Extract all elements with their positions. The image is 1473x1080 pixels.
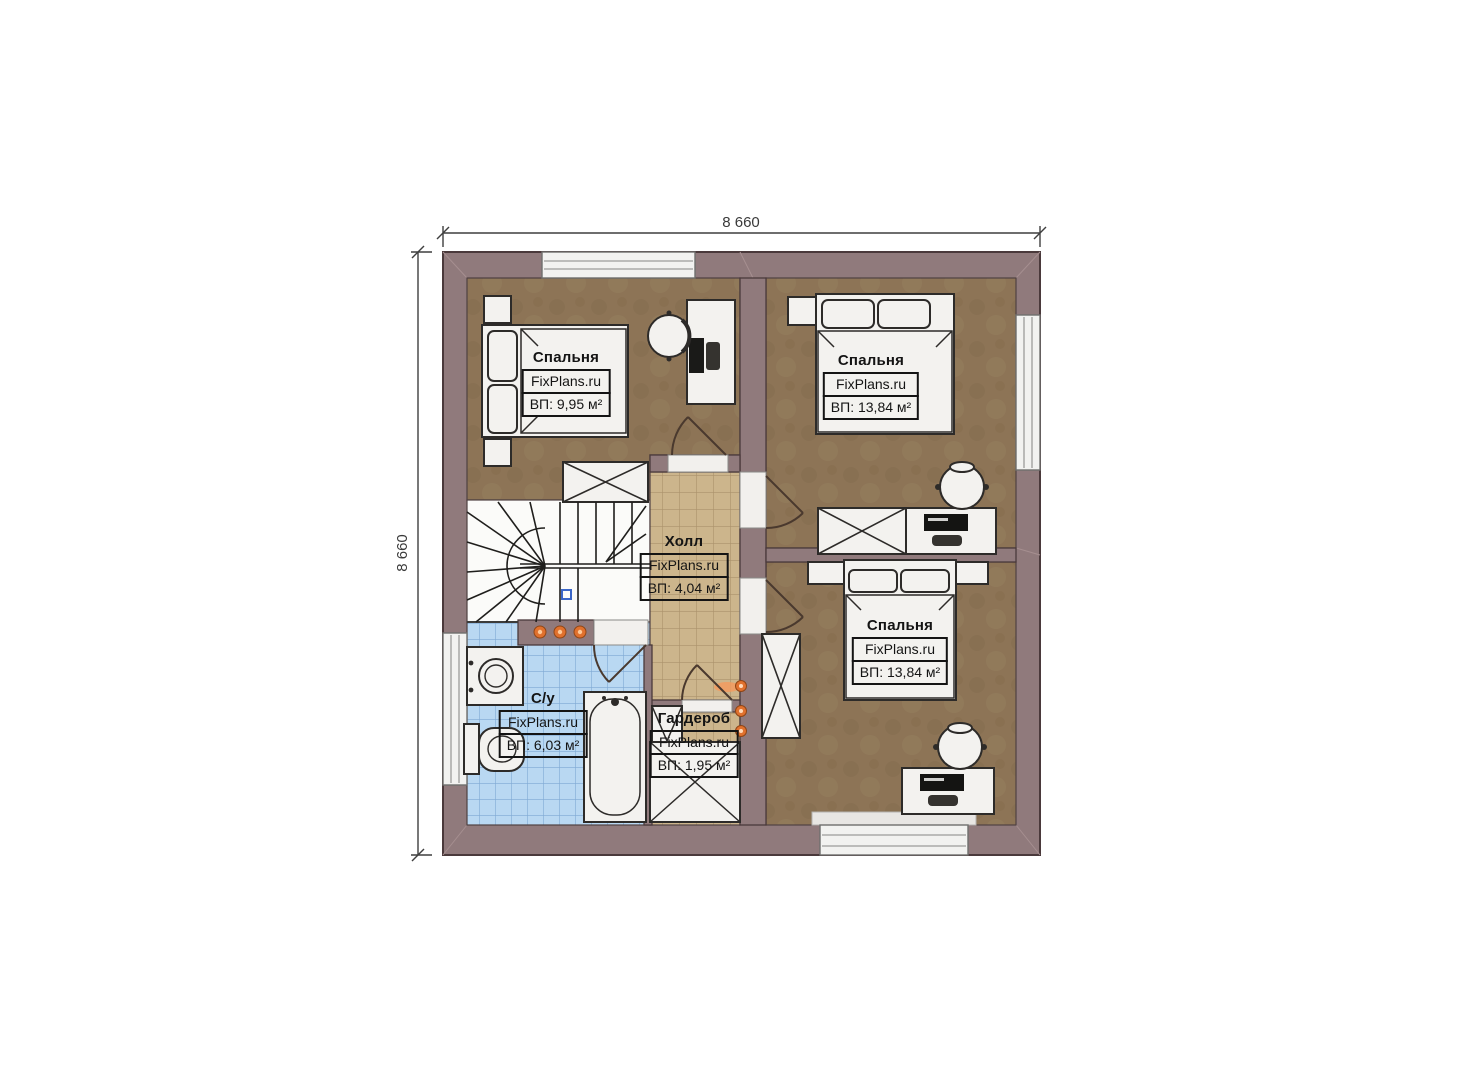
chair-armrest	[667, 357, 672, 362]
window-top	[542, 252, 695, 278]
room-label-boxes: FixPlans.ru ВП: 9,95 м²	[522, 369, 611, 417]
ceiling-lights	[534, 626, 586, 638]
chair-armrest	[983, 484, 989, 490]
room-label-bedroom-bottom-right: Спальня FixPlans.ru ВП: 13,84 м²	[852, 617, 948, 685]
monitor-icon	[920, 774, 964, 791]
room-label-bedroom-top-right: Спальня FixPlans.ru ВП: 13,84 м²	[823, 352, 919, 420]
room-name: Гардероб	[658, 710, 731, 727]
room-brand: FixPlans.ru	[852, 637, 948, 662]
room-area: ВП: 13,84 м²	[823, 395, 919, 420]
dimension-top-value: 8 660	[722, 214, 760, 231]
pillow	[488, 331, 517, 381]
pillow	[822, 300, 874, 328]
room-brand: FixPlans.ru	[522, 369, 611, 394]
keyboard-icon	[932, 535, 962, 546]
wall-center-vertical	[740, 278, 766, 825]
light-glow	[558, 630, 562, 634]
floor-plan-page: 8 660 8 660	[0, 0, 1473, 1080]
room-area: ВП: 4,04 м²	[640, 576, 729, 601]
room-brand: FixPlans.ru	[640, 553, 729, 578]
room-name: Спальня	[533, 349, 599, 366]
washer-knob	[469, 688, 474, 693]
room-label-bedroom-top-left: Спальня FixPlans.ru ВП: 9,95 м²	[522, 349, 611, 417]
nightstand	[788, 297, 816, 325]
window-right-bedroom	[1016, 315, 1040, 470]
room-name: С/у	[531, 690, 555, 707]
light-glow	[739, 709, 743, 713]
room-name: Спальня	[867, 617, 933, 634]
chair-headrest	[948, 723, 972, 733]
room-brand: FixPlans.ru	[823, 372, 919, 397]
monitor-highlight	[924, 778, 944, 781]
floor-plan-drawing: 8 660 8 660	[0, 0, 1473, 1080]
room-label-bathroom: С/у FixPlans.ru ВП: 6,03 м²	[499, 690, 588, 758]
room-brand: FixPlans.ru	[650, 730, 739, 755]
room-label-boxes: FixPlans.ru ВП: 13,84 м²	[852, 637, 948, 685]
wardrobe-crossed	[762, 634, 800, 738]
nightstand	[484, 439, 511, 466]
room-label-hall: Холл FixPlans.ru ВП: 4,04 м²	[640, 533, 729, 601]
monitor-icon	[689, 338, 704, 373]
room-label-boxes: FixPlans.ru ВП: 1,95 м²	[650, 730, 739, 778]
room-brand: FixPlans.ru	[499, 710, 588, 735]
room-area: ВП: 9,95 м²	[522, 392, 611, 417]
room-area: ВП: 6,03 м²	[499, 733, 588, 758]
light-glow	[578, 630, 582, 634]
light-glow	[739, 684, 743, 688]
toilet-tank	[464, 724, 479, 774]
chair-armrest	[667, 311, 672, 316]
cabinet-crossed	[563, 462, 648, 502]
room-label-boxes: FixPlans.ru ВП: 13,84 м²	[823, 372, 919, 420]
room-area: ВП: 13,84 м²	[852, 660, 948, 685]
monitor-icon	[924, 514, 968, 531]
faucet-handle	[602, 696, 606, 700]
nightstand	[808, 562, 844, 584]
room-area: ВП: 1,95 м²	[650, 753, 739, 778]
wardrobe-crossed	[818, 508, 906, 554]
keyboard-icon	[928, 795, 958, 806]
chair-armrest	[981, 744, 987, 750]
room-name: Холл	[665, 533, 703, 550]
monitor-highlight	[928, 518, 948, 521]
washer-knob	[469, 661, 474, 666]
room-name: Спальня	[838, 352, 904, 369]
room-label-boxes: FixPlans.ru ВП: 6,03 м²	[499, 710, 588, 758]
chair-armrest	[933, 744, 939, 750]
light-glow	[739, 729, 743, 733]
faucet-handle	[624, 696, 628, 700]
window-bottom-bedroom	[812, 812, 976, 855]
keyboard-icon	[706, 342, 720, 370]
nightstand	[952, 562, 988, 584]
pillow	[488, 385, 517, 433]
chair-headrest	[950, 462, 974, 472]
room-label-boxes: FixPlans.ru ВП: 4,04 м²	[640, 553, 729, 601]
chair-armrest	[935, 484, 941, 490]
pillow	[878, 300, 930, 328]
nightstand	[484, 296, 511, 323]
staircase-area	[467, 500, 650, 622]
dimension-left-value: 8 660	[394, 534, 411, 572]
pillow	[849, 570, 897, 592]
pillow	[901, 570, 949, 592]
dimension-left	[411, 246, 432, 861]
room-label-wardrobe: Гардероб FixPlans.ru ВП: 1,95 м²	[650, 710, 739, 778]
bathtub-faucet	[611, 698, 619, 706]
light-glow	[538, 630, 542, 634]
